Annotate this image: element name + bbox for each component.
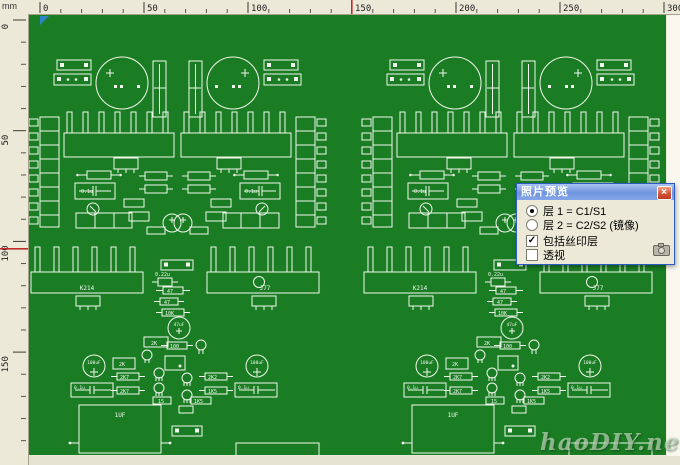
radio-layer2-label: 层 2 = C2/S2 (镜像) [543,217,639,233]
svg-text:100: 100 [1,245,11,261]
label-r47: 47 [164,300,170,306]
canvas-margin-bottom [28,456,680,465]
option-layer1[interactable]: 层 1 = C1/S1 [526,204,674,217]
svg-text:250: 250 [563,4,579,14]
label-cap-022u: 0.22u [155,272,170,278]
option-perspective[interactable]: 透视 [526,248,674,261]
label-r2k7: 2K7 [120,389,129,395]
label-mosfet-k214: K214 [80,285,95,292]
label-r2k7: 2K7 [120,375,129,381]
option-silkscreen[interactable]: 包括丝印层 [526,234,674,247]
label-cap-01u: 0.1u [74,385,85,391]
camera-button[interactable] [653,243,670,259]
label-cap-01u: 0.1u [245,189,257,195]
close-icon[interactable]: × [657,186,672,200]
ruler-unit-label: mm [0,0,28,13]
camera-icon [653,243,670,256]
label-r2k: 2K [151,341,157,347]
label-r2k: 2K [119,362,125,368]
vertical-ruler[interactable]: 050100150 [0,14,29,465]
svg-text:200: 200 [459,4,475,14]
label-r100: 100 [170,344,179,350]
label-cap-100uf: 100uF [250,360,264,366]
checkbox-silkscreen[interactable] [526,235,538,247]
svg-text:0: 0 [1,24,11,29]
svg-text:300: 300 [667,4,680,14]
label-r2k2: 2K2 [208,375,217,381]
label-cap-01u: 0.1u [238,385,249,391]
label-r10k: 10K [165,311,174,317]
svg-text:0: 0 [43,4,48,14]
dialog-title: 照片预览 [521,186,569,198]
label-r1k5: 1K5 [208,389,217,395]
label-mosfet-j77: J77 [260,285,271,292]
svg-text:100: 100 [251,4,267,14]
label-cap-47uf: 47uF [174,322,185,328]
svg-text:50: 50 [147,4,158,14]
pcb-preview-window: 0.1u 0.1u K214 J77 [0,0,680,465]
svg-text:150: 150 [355,4,371,14]
label-cap-100uf: 100uF [87,360,101,366]
label-r15: 15 [158,399,164,405]
dialog-titlebar[interactable]: 照片预览 × [517,184,674,200]
checkbox-perspective[interactable] [526,249,538,261]
dialog-body: 层 1 = C1/S1 层 2 = C2/S2 (镜像) 包括丝印层 透视 [517,200,674,262]
radio-layer2[interactable] [526,219,538,231]
svg-text:150: 150 [1,356,11,372]
label-cap-01u: 0.1u [81,189,93,195]
checkbox-perspective-label: 透视 [543,247,565,263]
label-r1k5: 1K5 [194,399,203,405]
horizontal-ruler[interactable]: 050100150200250300 [0,0,680,15]
watermark-text: haoDIY.net [540,429,680,456]
option-layer2[interactable]: 层 2 = C2/S2 (镜像) [526,218,674,231]
label-r47: 47 [167,289,173,295]
radio-layer1[interactable] [526,205,538,217]
photo-preview-dialog: 照片预览 × 层 1 = C1/S1 层 2 = C2/S2 (镜像) 包括丝印… [516,183,675,265]
label-cap-1uf: 1UF [115,412,126,419]
svg-text:50: 50 [1,135,11,146]
